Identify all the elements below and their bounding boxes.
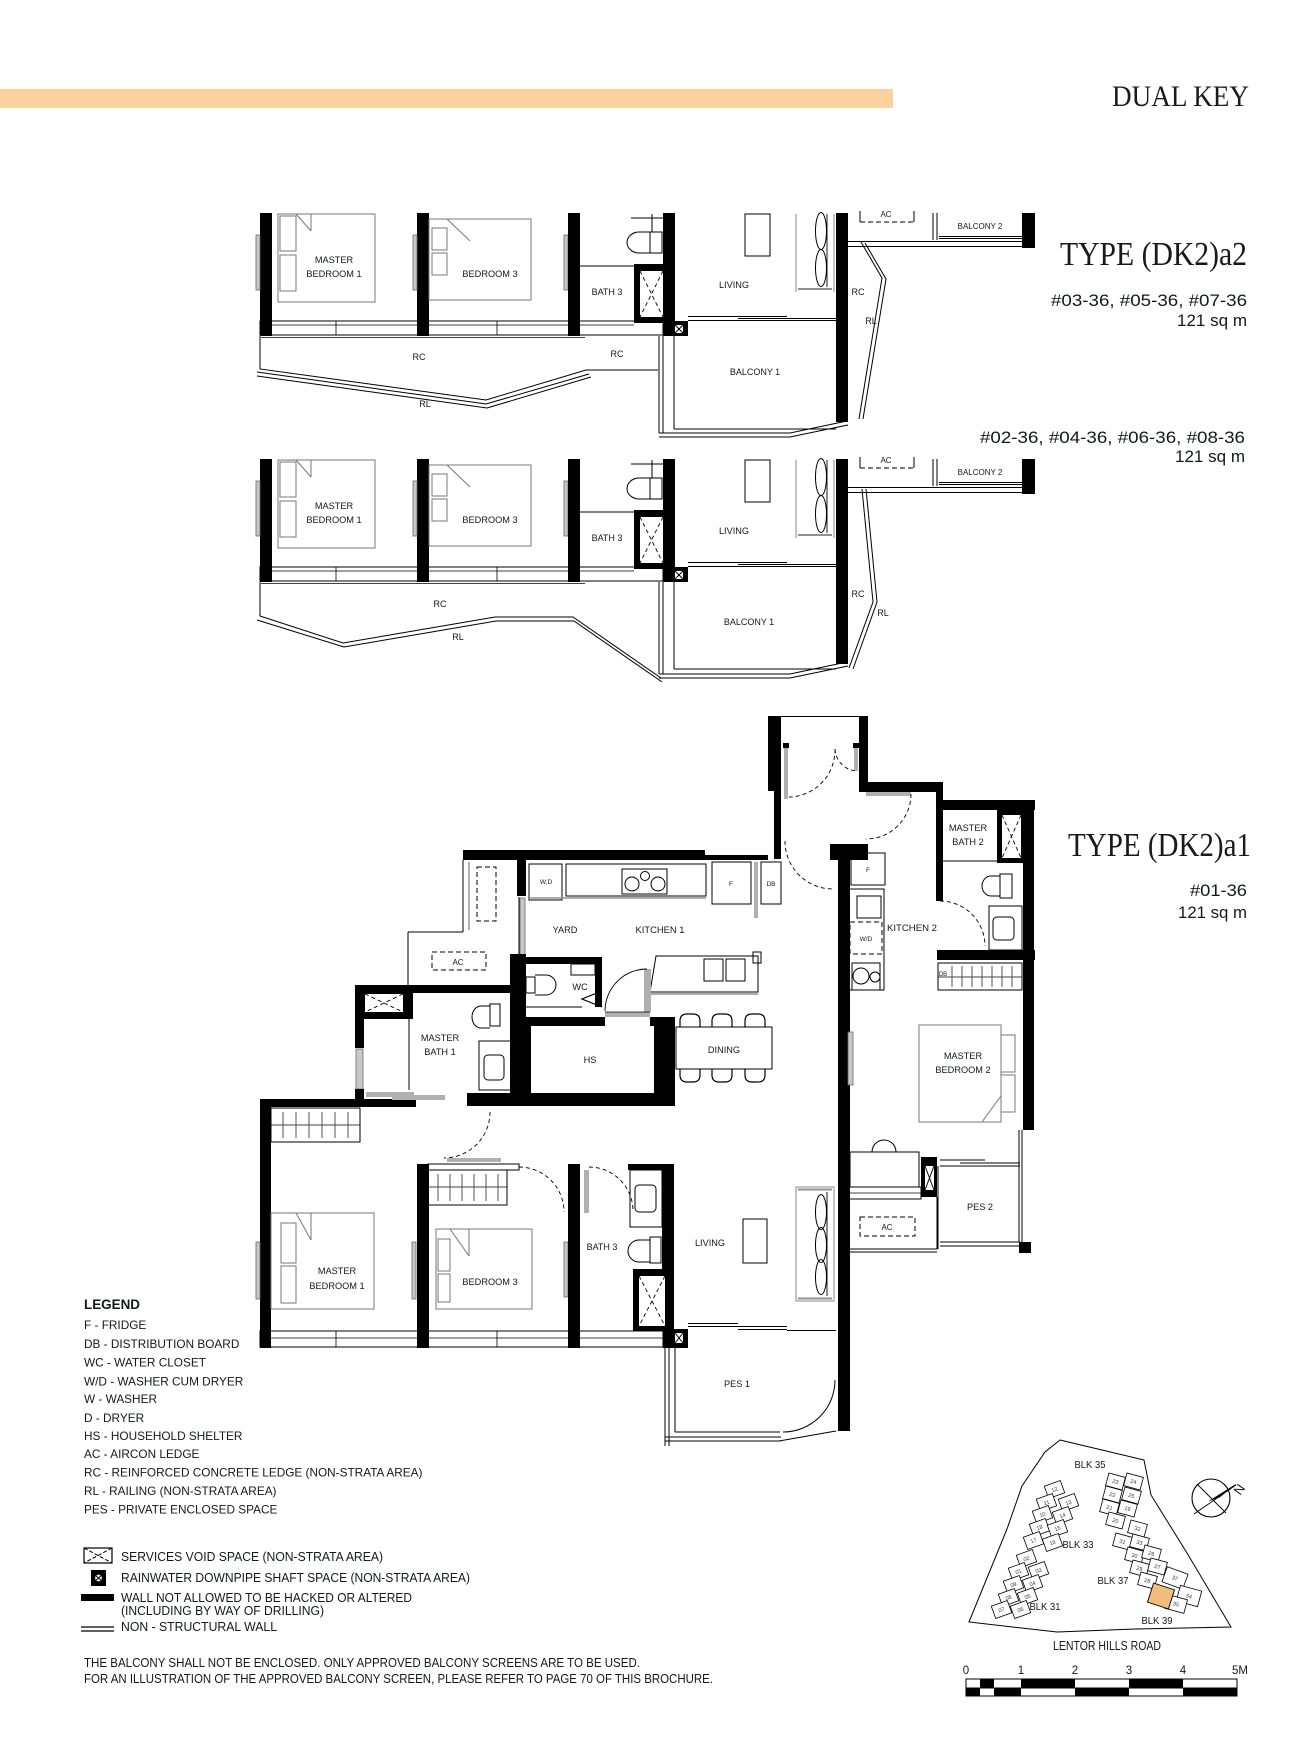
svg-text:DINING: DINING [708,1045,740,1055]
svg-text:AC - AIRCON LEDGE: AC - AIRCON LEDGE [84,1447,200,1461]
svg-text:LEGEND: LEGEND [84,1297,140,1312]
svg-text:2: 2 [1072,1665,1078,1677]
svg-text:BALCONY 2: BALCONY 2 [958,468,1003,477]
svg-text:W/D: W/D [860,936,873,943]
svg-text:PES - PRIVATE ENCLOSED SPACE: PES - PRIVATE ENCLOSED SPACE [84,1503,278,1517]
svg-text:W,D: W,D [540,879,553,886]
svg-text:RC: RC [413,352,426,362]
svg-text:MASTER: MASTER [949,823,988,833]
svg-text:F: F [866,867,870,874]
svg-text:LENTOR HILLS ROAD: LENTOR HILLS ROAD [1053,1639,1161,1653]
svg-text:BALCONY 2: BALCONY 2 [958,222,1003,231]
svg-text:DB: DB [939,972,947,978]
svg-text:RC: RC [434,599,447,609]
svg-text:SERVICES VOID SPACE (NON-STRAT: SERVICES VOID SPACE (NON-STRATA AREA) [121,1550,383,1564]
svg-text:TYPE (DK2)a2: TYPE (DK2)a2 [1060,236,1247,273]
svg-text:YARD: YARD [553,925,578,935]
svg-text:MASTER: MASTER [421,1033,460,1043]
svg-text:BATH 2: BATH 2 [952,837,983,847]
svg-text:TYPE (DK2)a1: TYPE (DK2)a1 [1068,827,1251,864]
svg-text:BLK 31: BLK 31 [1030,1601,1061,1613]
svg-text:MASTER: MASTER [315,255,354,265]
svg-text:BATH 3: BATH 3 [592,287,623,297]
svg-text:WC - WATER CLOSET: WC - WATER CLOSET [84,1356,206,1370]
svg-text:AC: AC [880,456,891,465]
svg-text:BLK 37: BLK 37 [1098,1575,1129,1587]
svg-text:#01-36: #01-36 [1190,882,1247,900]
svg-text:D - DRYER: D - DRYER [84,1411,144,1425]
svg-text:AC: AC [452,958,463,967]
svg-text:(INCLUDING BY WAY OF DRILLING): (INCLUDING BY WAY OF DRILLING) [121,1604,324,1618]
svg-text:PES 2: PES 2 [967,1202,993,1212]
svg-text:AC: AC [881,1223,892,1232]
svg-text:HS - HOUSEHOLD SHELTER: HS - HOUSEHOLD SHELTER [84,1429,242,1443]
svg-text:1: 1 [1018,1665,1024,1677]
svg-text:121 sq m: 121 sq m [1177,312,1247,330]
svg-text:121 sq m: 121 sq m [1178,904,1247,922]
svg-text:KITCHEN 2: KITCHEN 2 [887,923,937,933]
svg-text:MASTER: MASTER [315,501,354,511]
svg-text:BATH 1: BATH 1 [424,1047,455,1057]
svg-text:BEDROOM 1: BEDROOM 1 [306,269,361,279]
svg-text:RL: RL [419,399,431,409]
svg-text:#03-36, #05-36, #07-36: #03-36, #05-36, #07-36 [1051,292,1247,310]
svg-text:DUAL KEY: DUAL KEY [1112,80,1249,113]
svg-text:WC: WC [572,982,588,992]
svg-text:RC: RC [611,349,624,359]
svg-text:BEDROOM 2: BEDROOM 2 [935,1065,990,1075]
svg-text:RL - RAILING (NON-STRATA AREA): RL - RAILING (NON-STRATA AREA) [84,1484,277,1498]
svg-text:THE BALCONY SHALL NOT BE ENCLO: THE BALCONY SHALL NOT BE ENCLOSED. ONLY … [84,1656,640,1670]
svg-text:BATH 3: BATH 3 [587,1242,618,1252]
svg-text:KITCHEN 1: KITCHEN 1 [636,925,685,935]
svg-text:F: F [729,881,733,888]
svg-text:W/D - WASHER CUM DRYER: W/D - WASHER CUM DRYER [84,1375,243,1389]
svg-text:BEDROOM 3: BEDROOM 3 [462,269,517,279]
svg-text:BLK 33: BLK 33 [1063,1539,1094,1551]
svg-text:BLK 35: BLK 35 [1075,1459,1106,1471]
svg-text:RL: RL [452,632,464,642]
svg-text:BEDROOM 1: BEDROOM 1 [309,1281,364,1291]
svg-text:W - WASHER: W - WASHER [84,1392,157,1406]
svg-text:BEDROOM 3: BEDROOM 3 [462,1277,517,1287]
svg-text:BALCONY 1: BALCONY 1 [730,367,780,377]
svg-text:BEDROOM 3: BEDROOM 3 [462,515,517,525]
svg-text:BLK 39: BLK 39 [1142,1615,1173,1627]
svg-text:PES 1: PES 1 [724,1379,750,1389]
svg-text:LIVING: LIVING [719,280,749,290]
svg-text:5M: 5M [1232,1665,1248,1677]
svg-text:RAINWATER DOWNPIPE SHAFT SPACE: RAINWATER DOWNPIPE SHAFT SPACE (NON-STRA… [121,1571,470,1585]
svg-text:RC - REINFORCED CONCRETE LEDGE: RC - REINFORCED CONCRETE LEDGE (NON-STRA… [84,1466,422,1480]
svg-text:121 sq m: 121 sq m [1175,448,1245,466]
svg-text:BEDROOM 1: BEDROOM 1 [306,515,361,525]
svg-text:DB - DISTRIBUTION BOARD: DB - DISTRIBUTION BOARD [84,1337,239,1351]
svg-text:F - FRIDGE: F - FRIDGE [84,1318,146,1332]
svg-text:RC: RC [852,287,865,297]
svg-text:FOR AN ILLUSTRATION OF THE APP: FOR AN ILLUSTRATION OF THE APPROVED BALC… [84,1672,713,1686]
svg-text:RC: RC [852,589,865,599]
svg-text:DB: DB [766,881,775,888]
svg-text:BATH 3: BATH 3 [592,533,623,543]
svg-text:3: 3 [1126,1665,1132,1677]
svg-text:RL: RL [877,608,889,618]
svg-text:MASTER: MASTER [318,1266,357,1276]
svg-text:NON - STRUCTURAL WALL: NON - STRUCTURAL WALL [121,1620,277,1634]
svg-text:#02-36, #04-36, #06-36, #08-36: #02-36, #04-36, #06-36, #08-36 [980,429,1245,447]
svg-text:HS: HS [584,1055,597,1065]
svg-text:LIVING: LIVING [695,1238,725,1248]
svg-text:4: 4 [1180,1665,1187,1677]
svg-text:0: 0 [963,1665,969,1677]
svg-text:AC: AC [880,210,891,219]
svg-text:WALL NOT ALLOWED TO BE HACKED: WALL NOT ALLOWED TO BE HACKED OR ALTERED [121,1591,412,1605]
svg-text:MASTER: MASTER [944,1051,983,1061]
svg-text:LIVING: LIVING [719,526,749,536]
svg-text:BALCONY 1: BALCONY 1 [724,617,774,627]
